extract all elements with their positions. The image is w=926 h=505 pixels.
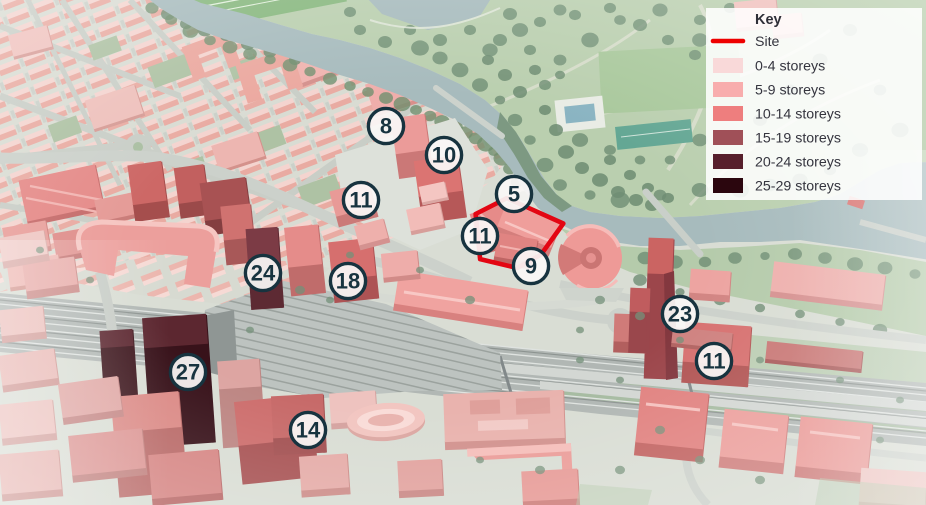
svg-text:27: 27 xyxy=(176,360,200,385)
svg-text:9: 9 xyxy=(525,254,537,279)
svg-text:5-9 storeys: 5-9 storeys xyxy=(755,83,825,99)
svg-text:Site: Site xyxy=(755,34,780,50)
svg-text:10-14 storeys: 10-14 storeys xyxy=(755,107,841,123)
svg-text:5: 5 xyxy=(508,182,520,207)
svg-text:20-24 storeys: 20-24 storeys xyxy=(755,155,841,171)
svg-text:25-29 storeys: 25-29 storeys xyxy=(755,179,841,195)
svg-text:Key: Key xyxy=(755,12,782,28)
svg-text:0-4 storeys: 0-4 storeys xyxy=(755,59,825,75)
svg-text:24: 24 xyxy=(251,261,276,286)
svg-text:8: 8 xyxy=(380,114,392,139)
svg-text:11: 11 xyxy=(702,349,725,374)
svg-text:11: 11 xyxy=(349,188,372,213)
svg-text:14: 14 xyxy=(296,418,321,443)
svg-text:10: 10 xyxy=(432,143,456,168)
svg-text:23: 23 xyxy=(668,302,692,327)
svg-text:18: 18 xyxy=(336,269,360,294)
svg-text:11: 11 xyxy=(468,224,491,249)
svg-text:15-19 storeys: 15-19 storeys xyxy=(755,131,841,147)
